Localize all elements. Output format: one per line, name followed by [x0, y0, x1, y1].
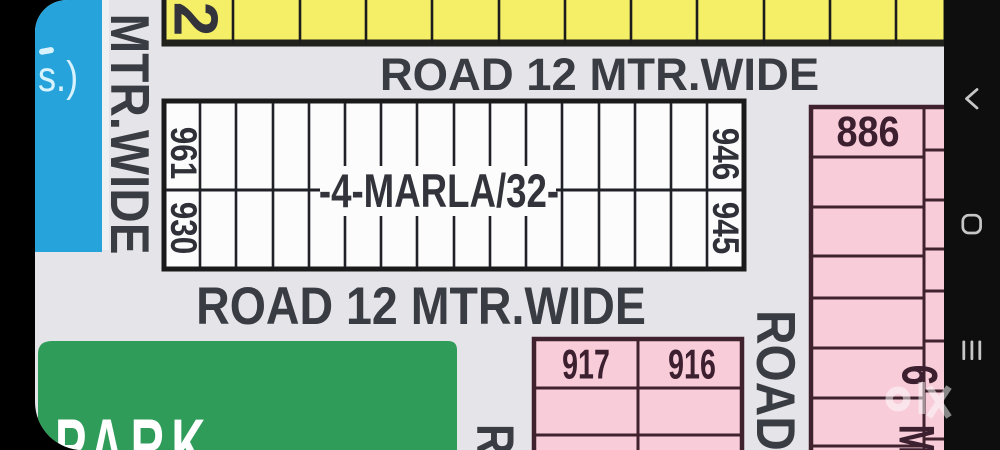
svg-text:-4-MARLA/32-: -4-MARLA/32-: [319, 165, 559, 217]
svg-text:PARK: PARK: [55, 405, 212, 450]
svg-text:945: 945: [705, 202, 746, 254]
svg-text:ROAD: ROAD: [465, 424, 524, 450]
svg-text:917: 917: [562, 340, 610, 388]
svg-text:ROAD 12 MTR.WIDE: ROAD 12 MTR.WIDE: [380, 49, 819, 100]
svg-text:ROAD: ROAD: [745, 310, 807, 450]
svg-text:2: 2: [161, 2, 230, 36]
svg-text:946: 946: [705, 128, 746, 180]
svg-text:886: 886: [836, 107, 899, 156]
svg-text:MTR.WIDE: MTR.WIDE: [99, 13, 161, 254]
svg-text:M: M: [888, 424, 943, 450]
svg-text:916: 916: [668, 340, 716, 388]
svg-text:ROAD 12 MTR.WIDE: ROAD 12 MTR.WIDE: [196, 276, 646, 336]
svg-text:961: 961: [163, 127, 204, 179]
svg-text:s.): s.): [38, 53, 78, 101]
svg-text:930: 930: [163, 202, 204, 254]
